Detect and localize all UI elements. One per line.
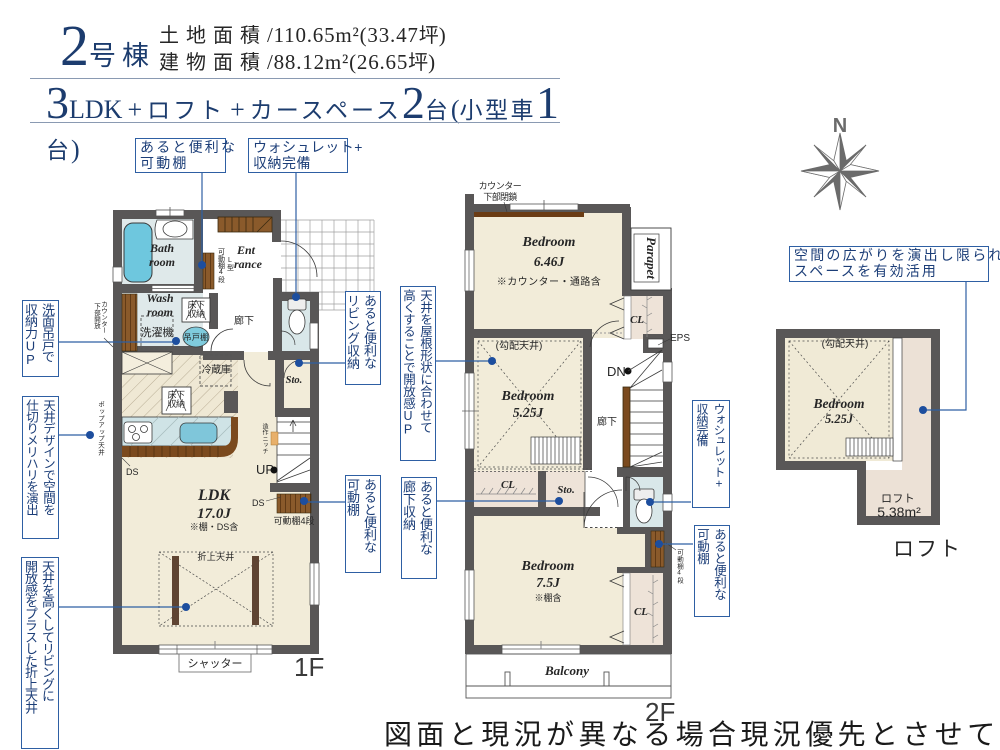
svg-text:吊戸棚: 吊戸棚 [184,332,209,342]
svg-text:可動棚4段: 可動棚4段 [273,515,314,526]
svg-text:Bedroom: Bedroom [522,235,576,250]
svg-text:収納: 収納 [187,308,205,319]
svg-text:rance: rance [234,257,263,271]
svg-text:Bedroom: Bedroom [812,396,864,411]
svg-text:シャッター: シャッター [188,657,243,670]
svg-text:EPS: EPS [670,333,690,344]
svg-text:5.25J: 5.25J [825,412,854,426]
svg-text:※カウンター・通路含: ※カウンター・通路含 [497,275,602,288]
svg-text:DN: DN [607,364,626,379]
svg-text:5.25J: 5.25J [513,405,545,420]
svg-text:L型: L型 [227,257,235,271]
svg-text:Ent: Ent [236,243,256,257]
svg-text:カウンター: カウンター [100,301,108,334]
svg-text:折上天井: 折上天井 [197,551,234,562]
svg-text:洗濯機: 洗濯機 [141,325,174,339]
svg-text:廊下: 廊下 [234,314,254,327]
svg-text:Sto.: Sto. [557,484,574,496]
svg-text:収納: 収納 [167,398,185,409]
svg-text:Wash: Wash [146,291,173,305]
svg-text:Parapet: Parapet [644,237,659,279]
svg-text:6.46J: 6.46J [534,254,566,269]
svg-text:CL: CL [630,314,644,326]
svg-text:room: room [149,255,175,269]
svg-text:カウンター: カウンター [479,181,522,191]
svg-text:CL: CL [501,479,515,491]
svg-text:DS: DS [126,467,139,477]
svg-text:Bath: Bath [149,241,174,255]
svg-text:ポップアップ天井: ポップアップ天井 [97,401,105,457]
svg-text:冷蔵庫: 冷蔵庫 [202,363,231,376]
svg-text:17.0J: 17.0J [197,506,231,522]
svg-text:※棚・DS含: ※棚・DS含 [190,521,239,532]
svg-text:LDK: LDK [197,487,231,504]
svg-text:CL: CL [634,606,648,618]
svg-text:Sto.: Sto. [286,375,303,386]
svg-text:room: room [147,305,173,319]
svg-text:5.38m²: 5.38m² [877,504,921,520]
svg-text:造作ニッチ: 造作ニッチ [261,422,268,454]
svg-text:可動棚4段: 可動棚4段 [676,549,684,585]
svg-text:Bedroom: Bedroom [501,389,555,404]
svg-text:DS: DS [252,498,265,508]
svg-text:廊下: 廊下 [597,415,617,428]
svg-text:Balcony: Balcony [544,663,589,678]
svg-text:7.5J: 7.5J [536,575,561,590]
svg-text:Bedroom: Bedroom [521,559,575,574]
svg-text:下部閉鎖: 下部閉鎖 [483,191,517,202]
svg-text:(勾配天井): (勾配天井) [496,339,543,352]
svg-text:(勾配天井): (勾配天井) [822,337,869,350]
svg-text:可動棚4段: 可動棚4段 [218,248,226,284]
svg-text:※棚含: ※棚含 [534,592,561,603]
